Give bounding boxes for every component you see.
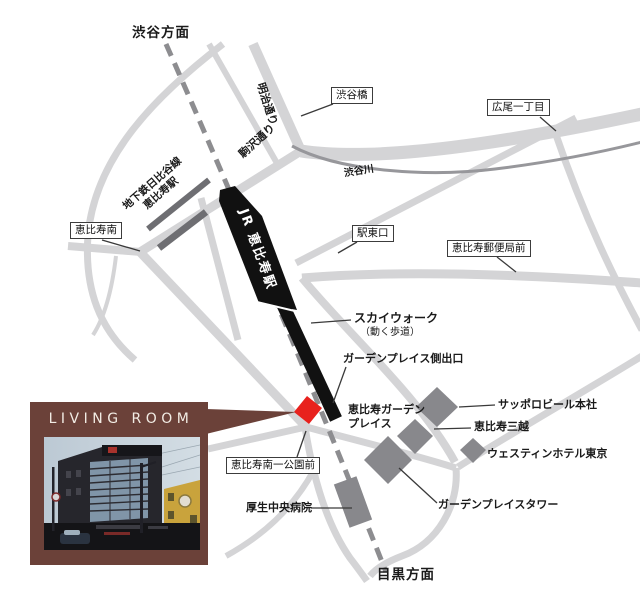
pointer-gp-tower <box>399 468 437 503</box>
road-post-office <box>302 274 640 283</box>
label-kosei-hospital: 厚生中央病院 <box>246 501 312 514</box>
photo-pole-right <box>140 463 143 533</box>
pointer-sapporo <box>459 405 495 407</box>
storefront-photo-illustration <box>44 437 200 550</box>
pointer-gp-exit <box>333 367 346 403</box>
living-room-card: LIVING ROOM <box>30 402 208 565</box>
label-sapporo-beer-hq: サッポロビール本社 <box>498 398 597 411</box>
road-to-hiroo <box>296 118 576 263</box>
label-garden-place-line2: プレイス <box>348 417 425 431</box>
living-room-photo <box>44 437 200 550</box>
label-box-eki-higashiguchi: 駅東口 <box>352 225 394 242</box>
label-shibuya-direction: 渋谷方面 <box>132 25 190 41</box>
label-garden-place-tower: ガーデンプレイスタワー <box>438 498 558 511</box>
photo-car-windshield <box>64 530 80 535</box>
building-hospital <box>334 476 372 527</box>
label-box-minami-koen-mae: 恵比寿南一公園前 <box>226 457 320 474</box>
photo-round-sign <box>179 495 191 507</box>
label-box-ebisu-minami: 恵比寿南 <box>70 222 122 239</box>
road-hiroo-south <box>555 132 640 330</box>
photo-logo-mark <box>108 447 117 453</box>
label-garden-place: 恵比寿ガーデン プレイス <box>348 403 425 431</box>
label-box-hiroo-itchome: 広尾一丁目 <box>487 99 550 116</box>
label-ebisu-mitsukoshi: 恵比寿三越 <box>474 420 529 433</box>
pointer-yubinkyoku <box>497 257 516 272</box>
photo-store-sign <box>104 532 130 535</box>
photo-street-sign <box>52 493 60 501</box>
road-ebisu-minami <box>68 246 141 252</box>
pointer-mitsukoshi <box>434 428 471 429</box>
label-box-shibuyabashi: 渋谷橋 <box>331 87 373 104</box>
label-garden-place-exit: ガーデンプレイス側出口 <box>343 352 463 365</box>
road-east-wide <box>301 114 640 154</box>
road-loop-right <box>370 468 456 576</box>
label-meguro-direction: 目黒方面 <box>377 567 435 583</box>
road-west-of-marker <box>208 427 306 449</box>
pointer-shibuyabashi <box>301 104 333 116</box>
label-box-yubinkyoku-mae: 恵比寿郵便局前 <box>447 240 531 257</box>
label-skywalk: スカイウォーク <box>354 311 438 325</box>
label-garden-place-line1: 恵比寿ガーデン <box>348 403 425 417</box>
label-skywalk-note: （動く歩道） <box>360 327 420 339</box>
access-map: 渋谷方面 目黒方面 明治通り 駒沢通り 渋谷川 渋谷橋 広尾一丁目 恵比寿南 駅… <box>0 0 640 611</box>
living-room-title: LIVING ROOM <box>30 411 208 427</box>
label-westin-hotel: ウェスティンホテル東京 <box>487 447 607 460</box>
